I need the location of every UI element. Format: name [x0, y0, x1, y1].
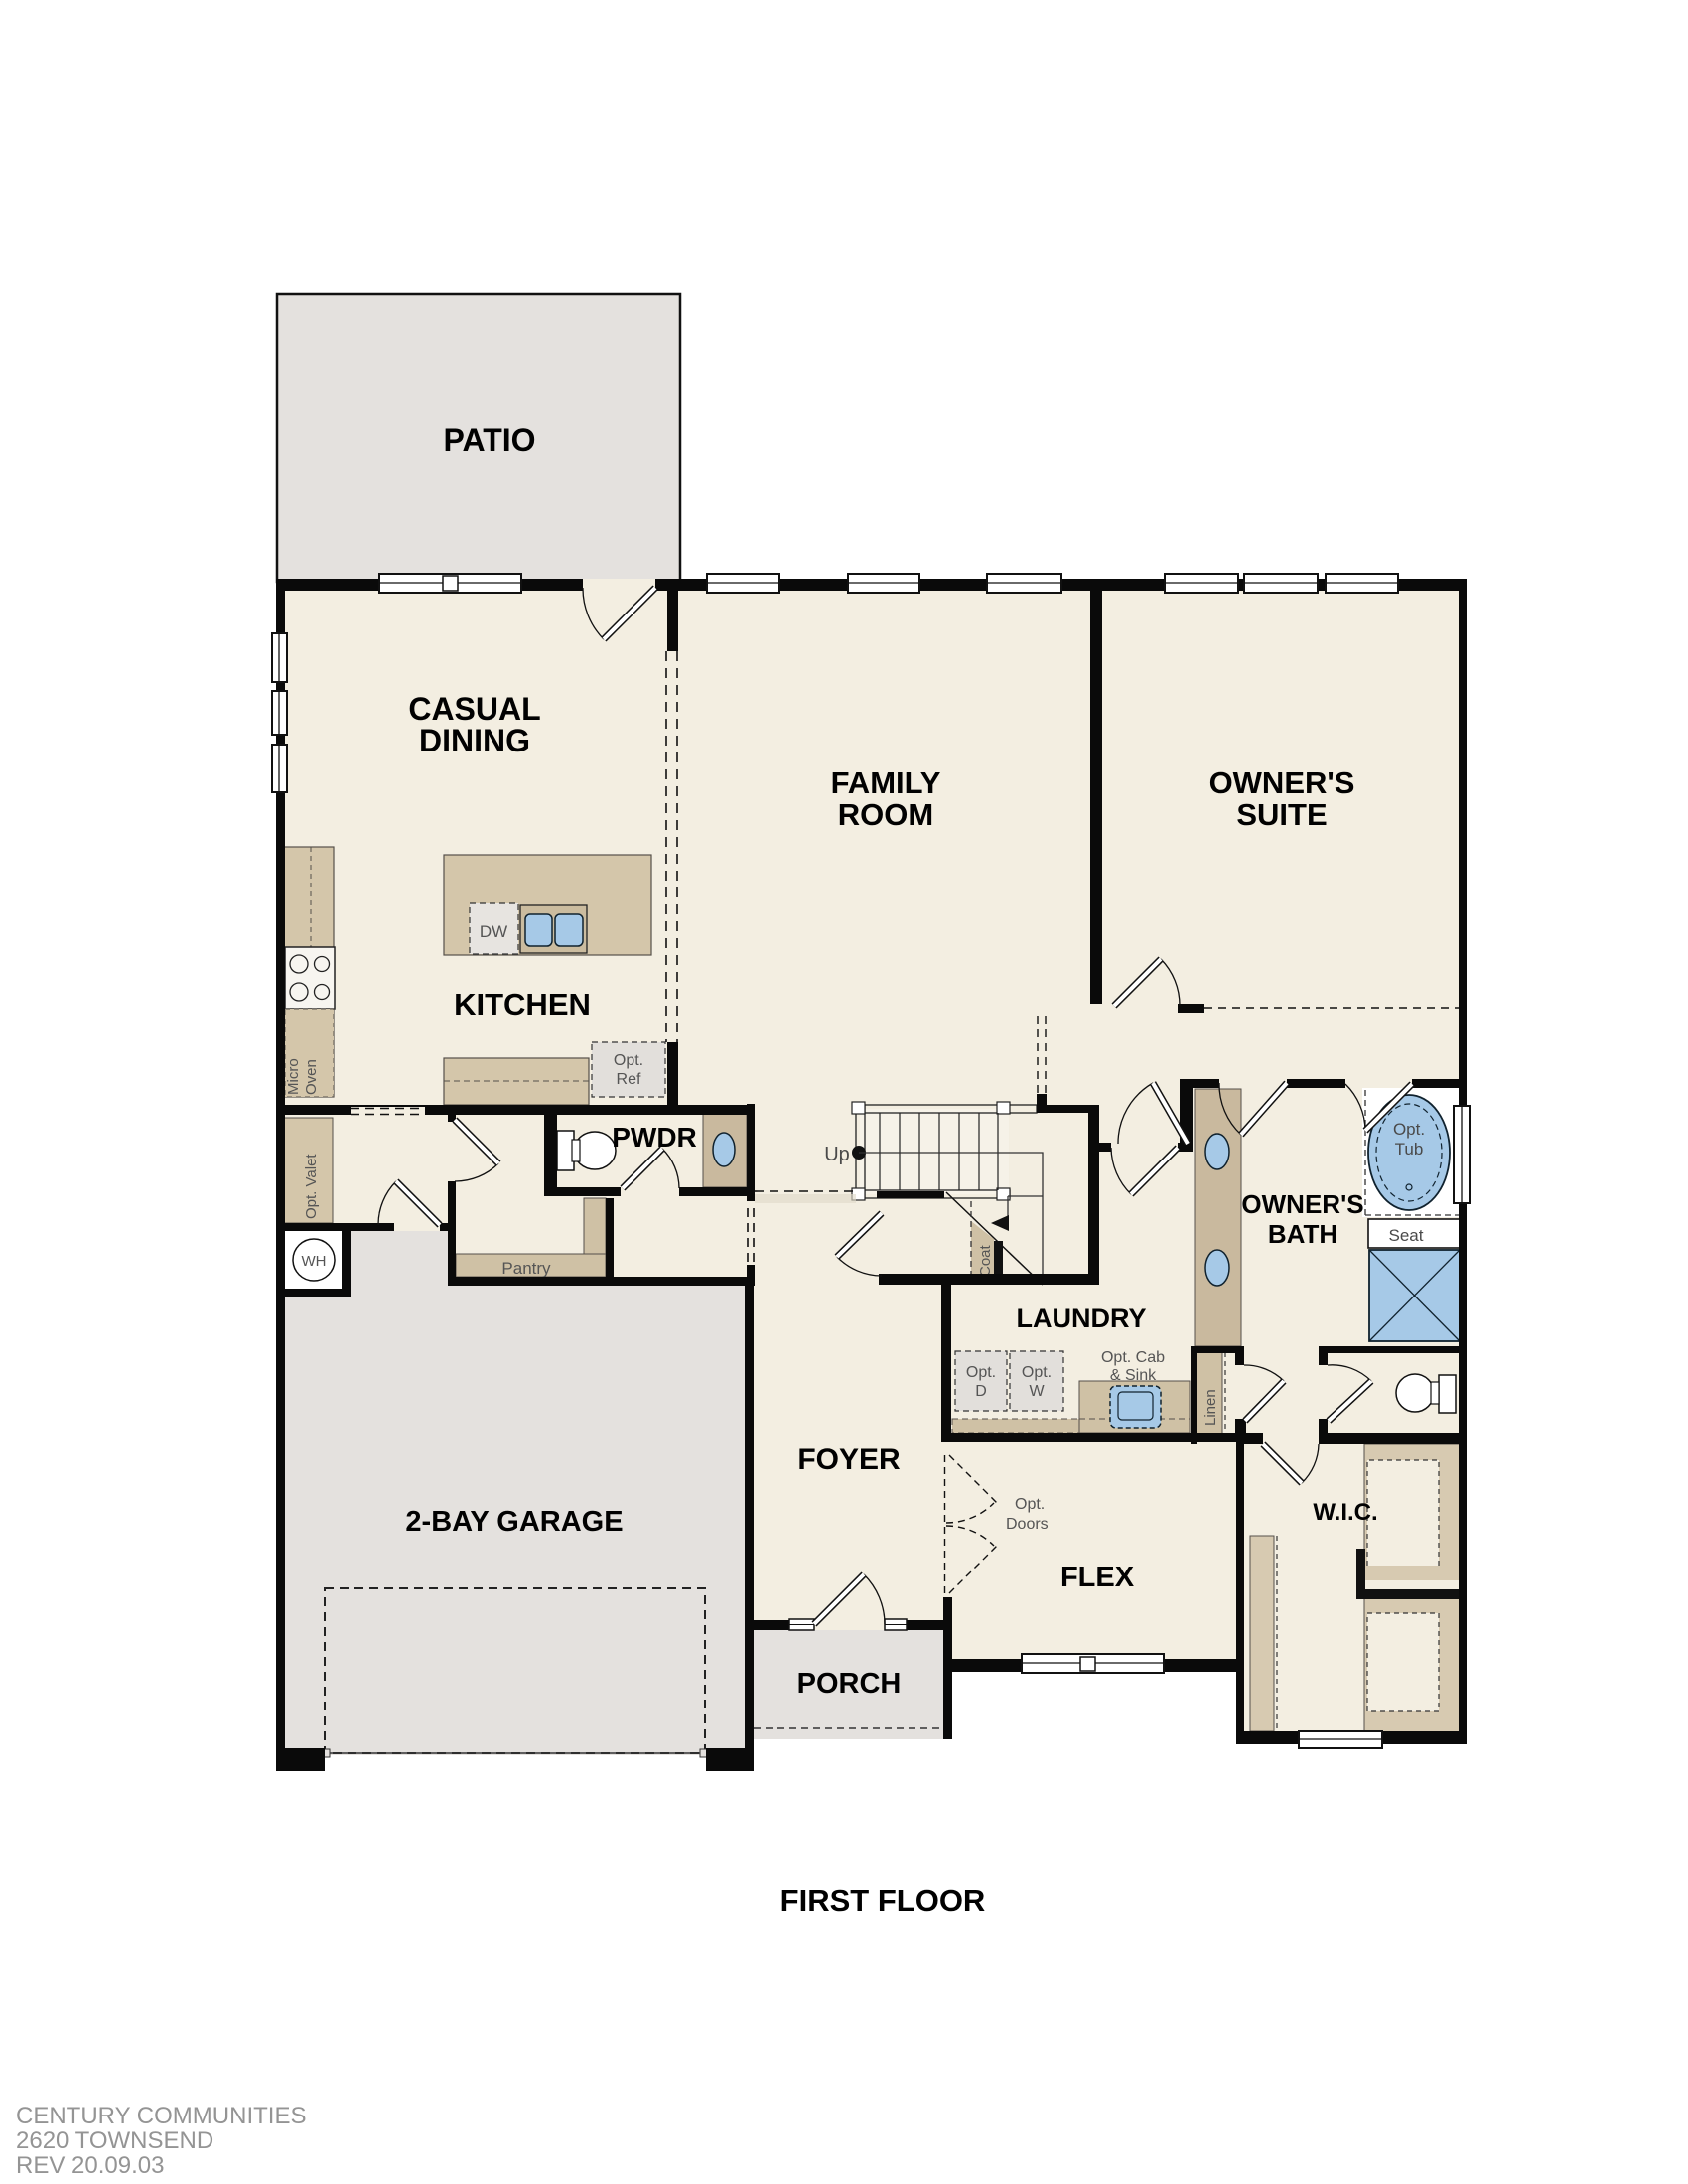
- svg-text:WH: WH: [302, 1253, 327, 1270]
- svg-text:BATH: BATH: [1268, 1219, 1337, 1249]
- svg-text:ROOM: ROOM: [838, 797, 933, 832]
- svg-text:D: D: [975, 1383, 987, 1400]
- svg-text:REV 20.09.03: REV 20.09.03: [16, 2152, 164, 2179]
- svg-text:Opt. Cab: Opt. Cab: [1101, 1349, 1165, 1366]
- svg-text:Tub: Tub: [1395, 1140, 1424, 1159]
- svg-text:Doors: Doors: [1006, 1516, 1049, 1533]
- svg-text:FIRST FLOOR: FIRST FLOOR: [780, 1883, 986, 1918]
- svg-text:PORCH: PORCH: [797, 1668, 902, 1700]
- svg-text:Linen: Linen: [1202, 1389, 1219, 1426]
- svg-text:LAUNDRY: LAUNDRY: [1017, 1303, 1147, 1333]
- svg-text:Oven: Oven: [303, 1059, 320, 1095]
- svg-text:Opt.: Opt.: [614, 1052, 643, 1069]
- svg-text:Coat: Coat: [977, 1244, 994, 1277]
- svg-text:KITCHEN: KITCHEN: [454, 987, 591, 1022]
- svg-text:Pantry: Pantry: [501, 1259, 551, 1278]
- svg-text:W.I.C.: W.I.C.: [1313, 1499, 1377, 1526]
- svg-text:FOYER: FOYER: [797, 1443, 901, 1476]
- svg-text:Ref: Ref: [617, 1071, 641, 1088]
- svg-text:Opt.: Opt.: [1393, 1120, 1425, 1139]
- svg-text:Opt.: Opt.: [966, 1364, 996, 1381]
- svg-text:DW: DW: [480, 922, 507, 941]
- svg-text:DINING: DINING: [419, 723, 530, 758]
- svg-text:Opt.: Opt.: [1022, 1364, 1052, 1381]
- svg-text:2620 TOWNSEND: 2620 TOWNSEND: [16, 2127, 213, 2154]
- svg-text:W: W: [1029, 1383, 1045, 1400]
- svg-text:OWNER'S: OWNER'S: [1209, 765, 1355, 800]
- svg-text:2-BAY GARAGE: 2-BAY GARAGE: [405, 1506, 623, 1538]
- svg-text:OWNER'S: OWNER'S: [1241, 1189, 1363, 1219]
- svg-text:Micro: Micro: [285, 1058, 302, 1095]
- svg-text:CASUAL: CASUAL: [408, 691, 540, 727]
- svg-text:FLEX: FLEX: [1060, 1562, 1135, 1593]
- svg-text:PATIO: PATIO: [443, 422, 535, 458]
- svg-text:CENTURY COMMUNITIES: CENTURY COMMUNITIES: [16, 2103, 306, 2129]
- svg-text:FAMILY: FAMILY: [831, 765, 941, 800]
- svg-text:Seat: Seat: [1389, 1226, 1424, 1245]
- svg-text:PWDR: PWDR: [612, 1122, 697, 1153]
- svg-text:SUITE: SUITE: [1236, 797, 1327, 832]
- svg-text:Opt.: Opt.: [1015, 1496, 1045, 1513]
- svg-text:& Sink: & Sink: [1110, 1367, 1157, 1384]
- svg-text:Opt. Valet: Opt. Valet: [303, 1154, 320, 1219]
- svg-text:Up: Up: [824, 1144, 850, 1165]
